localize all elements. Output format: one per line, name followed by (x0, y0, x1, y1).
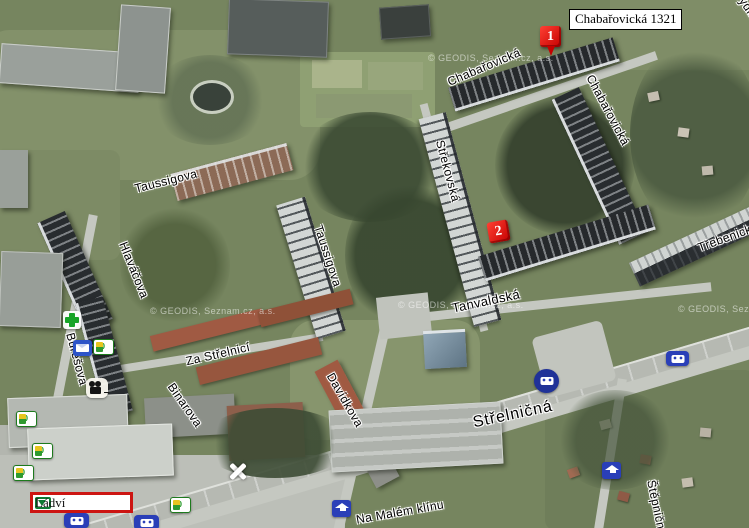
bus-stop-icon[interactable] (64, 513, 89, 528)
building (423, 329, 467, 369)
coins-icon (96, 342, 103, 352)
building (227, 0, 329, 58)
map-canvas[interactable]: © GEODIS, Seznam.cz, a.s. © GEODIS, Sezn… (0, 0, 749, 528)
trees (200, 408, 350, 478)
metro-station-label-ladvi[interactable]: Ládví (30, 492, 133, 513)
tram-icon (540, 377, 553, 385)
copyright-watermark: © GEODIS, Seznam.cz, a.s. (150, 306, 276, 316)
building (379, 4, 431, 39)
house (677, 127, 689, 137)
station-name: Ládví (35, 495, 65, 511)
sports-court (312, 60, 362, 88)
house (700, 428, 712, 438)
coins-icon (19, 414, 26, 424)
marker-1-number: 1 (547, 29, 554, 45)
tram-stop-icon[interactable] (666, 351, 689, 366)
pond (190, 80, 234, 114)
envelope-icon (76, 344, 89, 352)
bus-icon (70, 517, 83, 525)
house (702, 166, 714, 176)
marker-2[interactable]: 2 (486, 219, 510, 243)
copyright-watermark: © GEODIS, Seznam.cz, a.s. (678, 304, 749, 314)
atm-icon[interactable]: 10 (93, 339, 114, 355)
coins-icon (35, 446, 42, 456)
accommodation-icon[interactable] (332, 500, 351, 517)
atm-icon[interactable]: 10 (32, 443, 53, 459)
house (681, 477, 693, 487)
building (0, 150, 28, 208)
marker-2-number: 2 (494, 223, 504, 240)
restaurant-icon[interactable] (226, 459, 250, 483)
marker-1[interactable]: 1 (540, 26, 561, 47)
film-camera-icon (90, 387, 101, 394)
coins-icon (16, 468, 23, 478)
post-office-icon[interactable] (73, 340, 92, 356)
tram-icon (671, 355, 684, 363)
tram-icon (140, 519, 153, 527)
atm-icon[interactable]: 10 (16, 411, 37, 427)
building (0, 251, 63, 328)
pharmacy-icon[interactable] (63, 311, 81, 329)
street-label-na-malem-klinu: Na Malém klínu (355, 497, 445, 526)
atm-icon[interactable]: 10 (13, 465, 34, 481)
building (115, 4, 171, 93)
atm-icon[interactable]: 10 (170, 497, 191, 513)
coins-icon (173, 500, 180, 510)
cinema-icon[interactable] (86, 378, 108, 398)
tram-stop-icon[interactable] (534, 369, 559, 393)
address-label: Chabařovická 1321 (569, 9, 682, 30)
trees (630, 40, 749, 230)
sports-court (368, 62, 423, 90)
tram-stop-icon[interactable] (134, 515, 159, 528)
accommodation-icon[interactable] (602, 462, 621, 479)
